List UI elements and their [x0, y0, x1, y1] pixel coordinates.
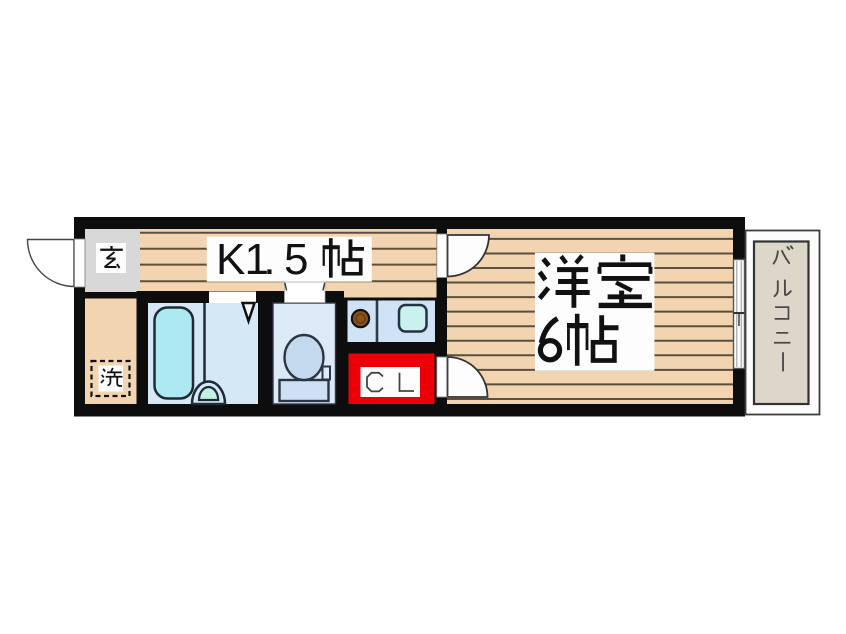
- svg-text:5: 5: [284, 235, 308, 284]
- svg-text:1: 1: [245, 235, 269, 284]
- svg-text:K: K: [216, 235, 245, 284]
